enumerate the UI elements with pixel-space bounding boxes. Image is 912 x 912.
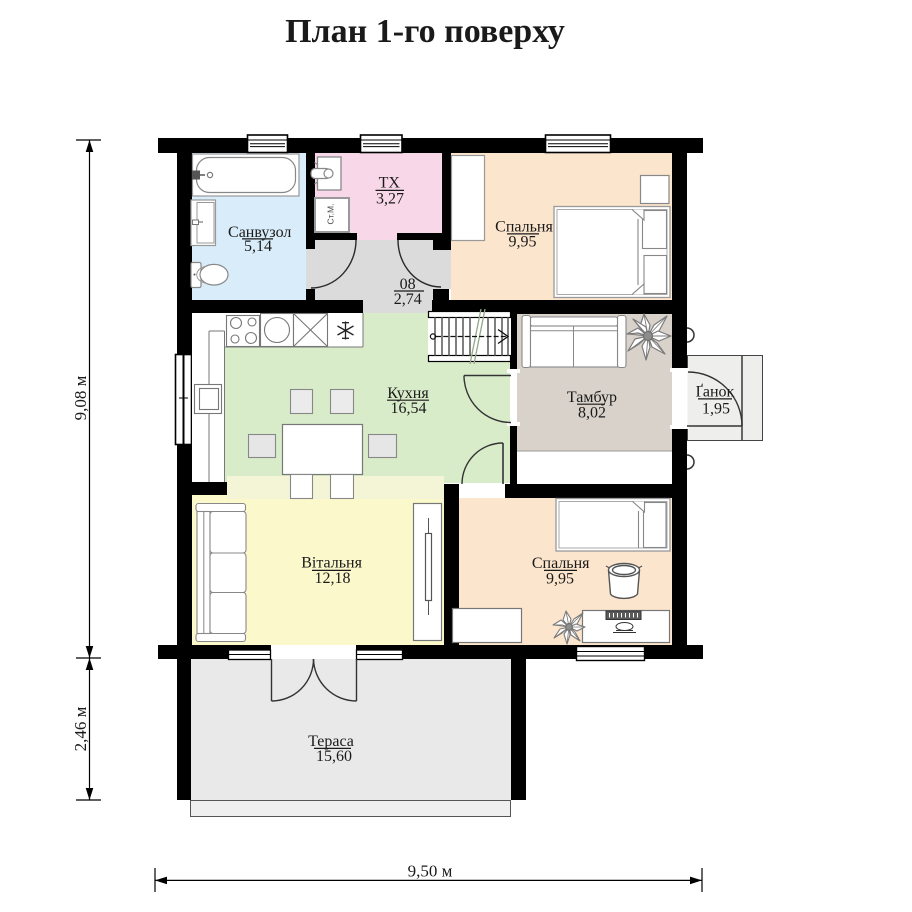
svg-text:Ст.М.: Ст.М. [325,204,335,225]
svg-text:9,95: 9,95 [509,233,537,250]
svg-text:15,60: 15,60 [316,748,352,765]
svg-text:Тамбур: Тамбур [567,389,617,406]
svg-text:9,95: 9,95 [546,571,574,588]
svg-text:12,18: 12,18 [315,570,351,587]
svg-text:2,74: 2,74 [394,291,422,308]
svg-text:3,27: 3,27 [376,191,404,208]
svg-text:9,50 м: 9,50 м [408,862,453,881]
svg-text:9,08 м: 9,08 м [71,375,90,420]
svg-text:16,54: 16,54 [391,400,427,417]
svg-text:Спальня: Спальня [532,555,590,572]
svg-text:1,95: 1,95 [702,401,730,418]
svg-text:ТХ: ТХ [379,175,401,192]
svg-text:2,46 м: 2,46 м [71,706,90,751]
svg-text:Ґанок: Ґанок [696,383,735,401]
svg-text:8,02: 8,02 [578,405,606,422]
svg-text:Вітальня: Вітальня [301,555,362,572]
svg-text:5,14: 5,14 [244,238,272,255]
svg-text:План 1-го поверху: План 1-го поверху [285,13,565,50]
